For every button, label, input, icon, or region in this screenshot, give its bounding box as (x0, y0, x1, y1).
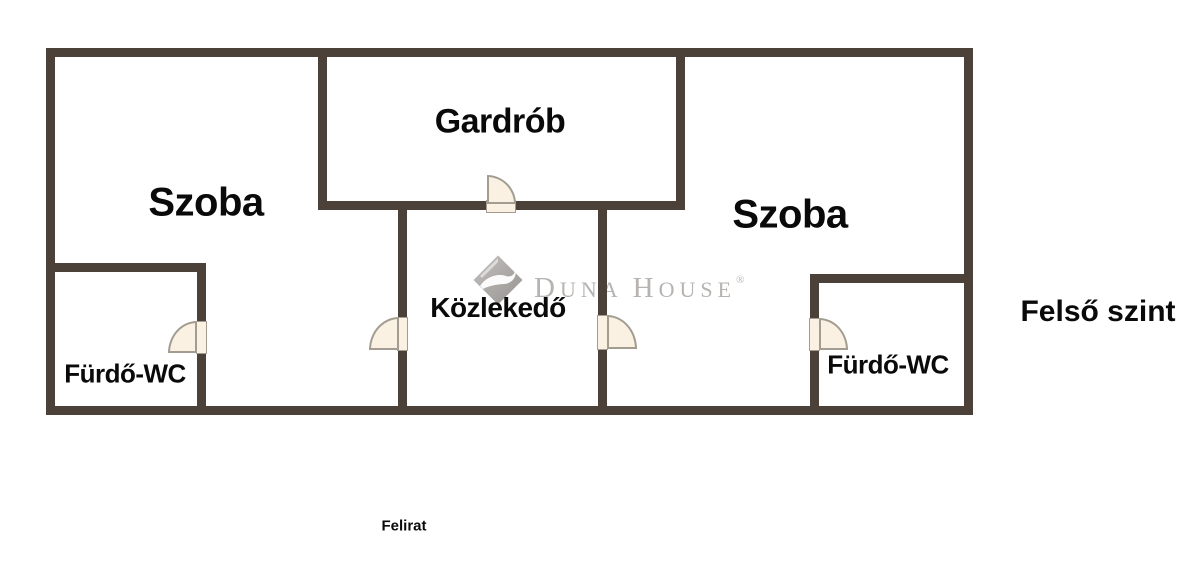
room-label-gardrob: Gardrób (435, 103, 566, 142)
wall-bath-left-top (55, 263, 206, 272)
wall-bath-right-top (810, 274, 964, 283)
wall-hall-right (598, 201, 607, 406)
wall-hall-left (398, 201, 407, 406)
wall-gardrob-right (676, 57, 685, 210)
room-label-kozlekedo: Közlekedő (430, 292, 566, 324)
room-label-furdo-wc-left: Fürdő-WC (64, 359, 186, 390)
room-label-furdo-wc-right: Fürdő-WC (827, 350, 949, 381)
caption-label: Felirat (381, 518, 426, 535)
room-label-szoba-left: Szoba (148, 181, 263, 226)
wall-gardrob-left (318, 57, 327, 210)
room-label-szoba-right: Szoba (732, 193, 847, 238)
doorway-bath-left (196, 321, 207, 354)
floor-level-label: Felső szint (1020, 295, 1175, 329)
floor-plan-canvas: DUNAHOUSE® Szoba Gardrób Szoba Közlekedő… (0, 0, 1200, 564)
